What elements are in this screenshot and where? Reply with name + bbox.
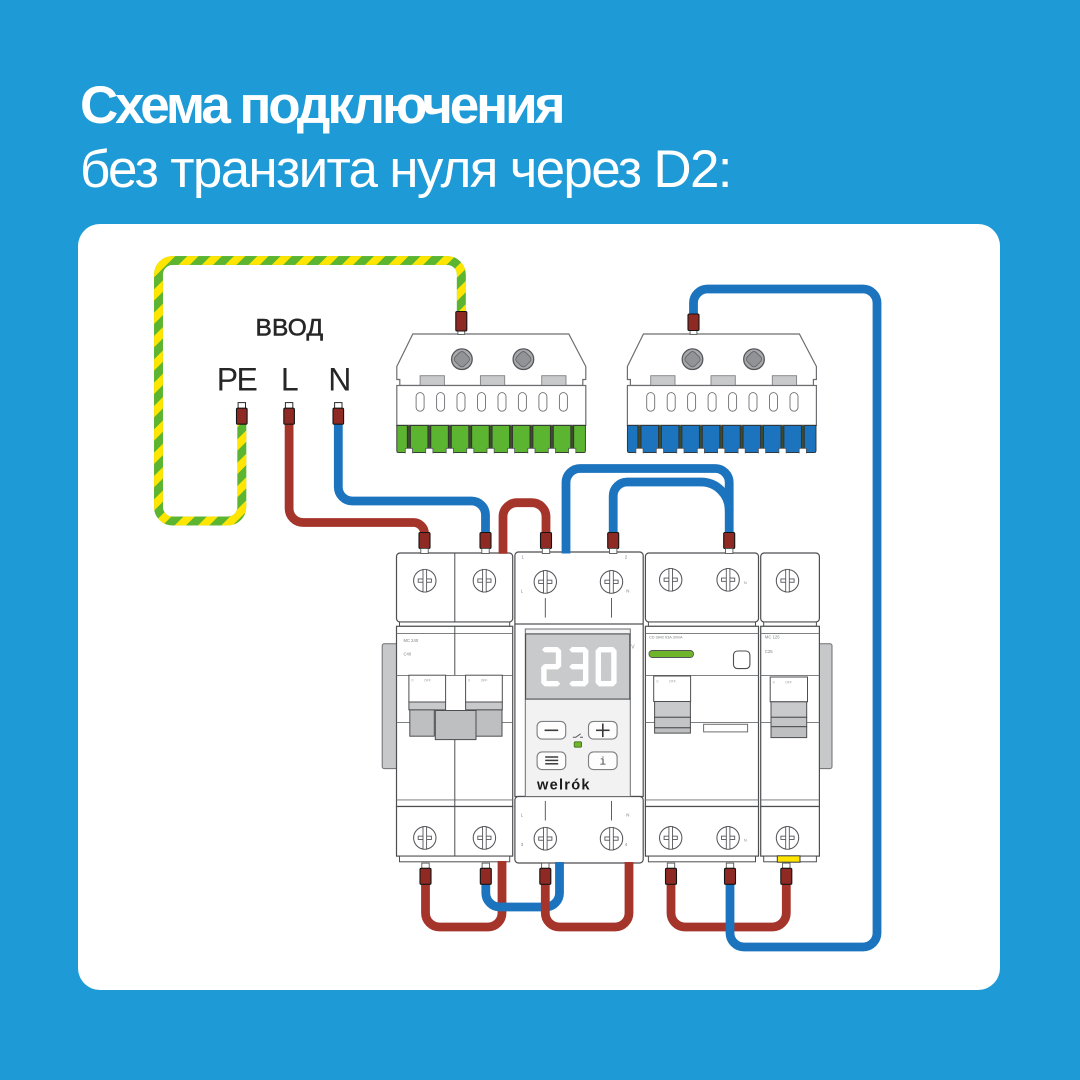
svg-text:N: N: [744, 839, 747, 843]
svg-text:i: i: [599, 757, 606, 769]
svg-text:welrók: welrók: [536, 777, 591, 793]
svg-text:0: 0: [773, 680, 775, 684]
svg-text:OFF: OFF: [481, 679, 488, 683]
svg-text:OFF: OFF: [785, 680, 792, 684]
svg-text:N: N: [328, 362, 351, 398]
svg-text:N: N: [626, 813, 629, 818]
svg-text:C25: C25: [765, 649, 773, 654]
svg-text:N: N: [744, 581, 747, 585]
svg-text:C40: C40: [404, 652, 412, 657]
svg-text:N: N: [626, 589, 629, 594]
svg-text:0: 0: [657, 679, 659, 683]
svg-text:OFF: OFF: [669, 679, 676, 683]
svg-text:CD 3842 63A 30mA: CD 3842 63A 30mA: [649, 636, 683, 640]
svg-text:0: 0: [412, 679, 414, 683]
svg-text:ВВОД: ВВОД: [256, 314, 324, 341]
svg-text:MC 240: MC 240: [404, 638, 419, 643]
svg-text:L: L: [281, 362, 299, 398]
svg-text:MC 125: MC 125: [765, 635, 780, 640]
svg-text:OFF: OFF: [424, 679, 431, 683]
svg-text:0: 0: [468, 679, 470, 683]
svg-text:PE: PE: [217, 362, 257, 398]
